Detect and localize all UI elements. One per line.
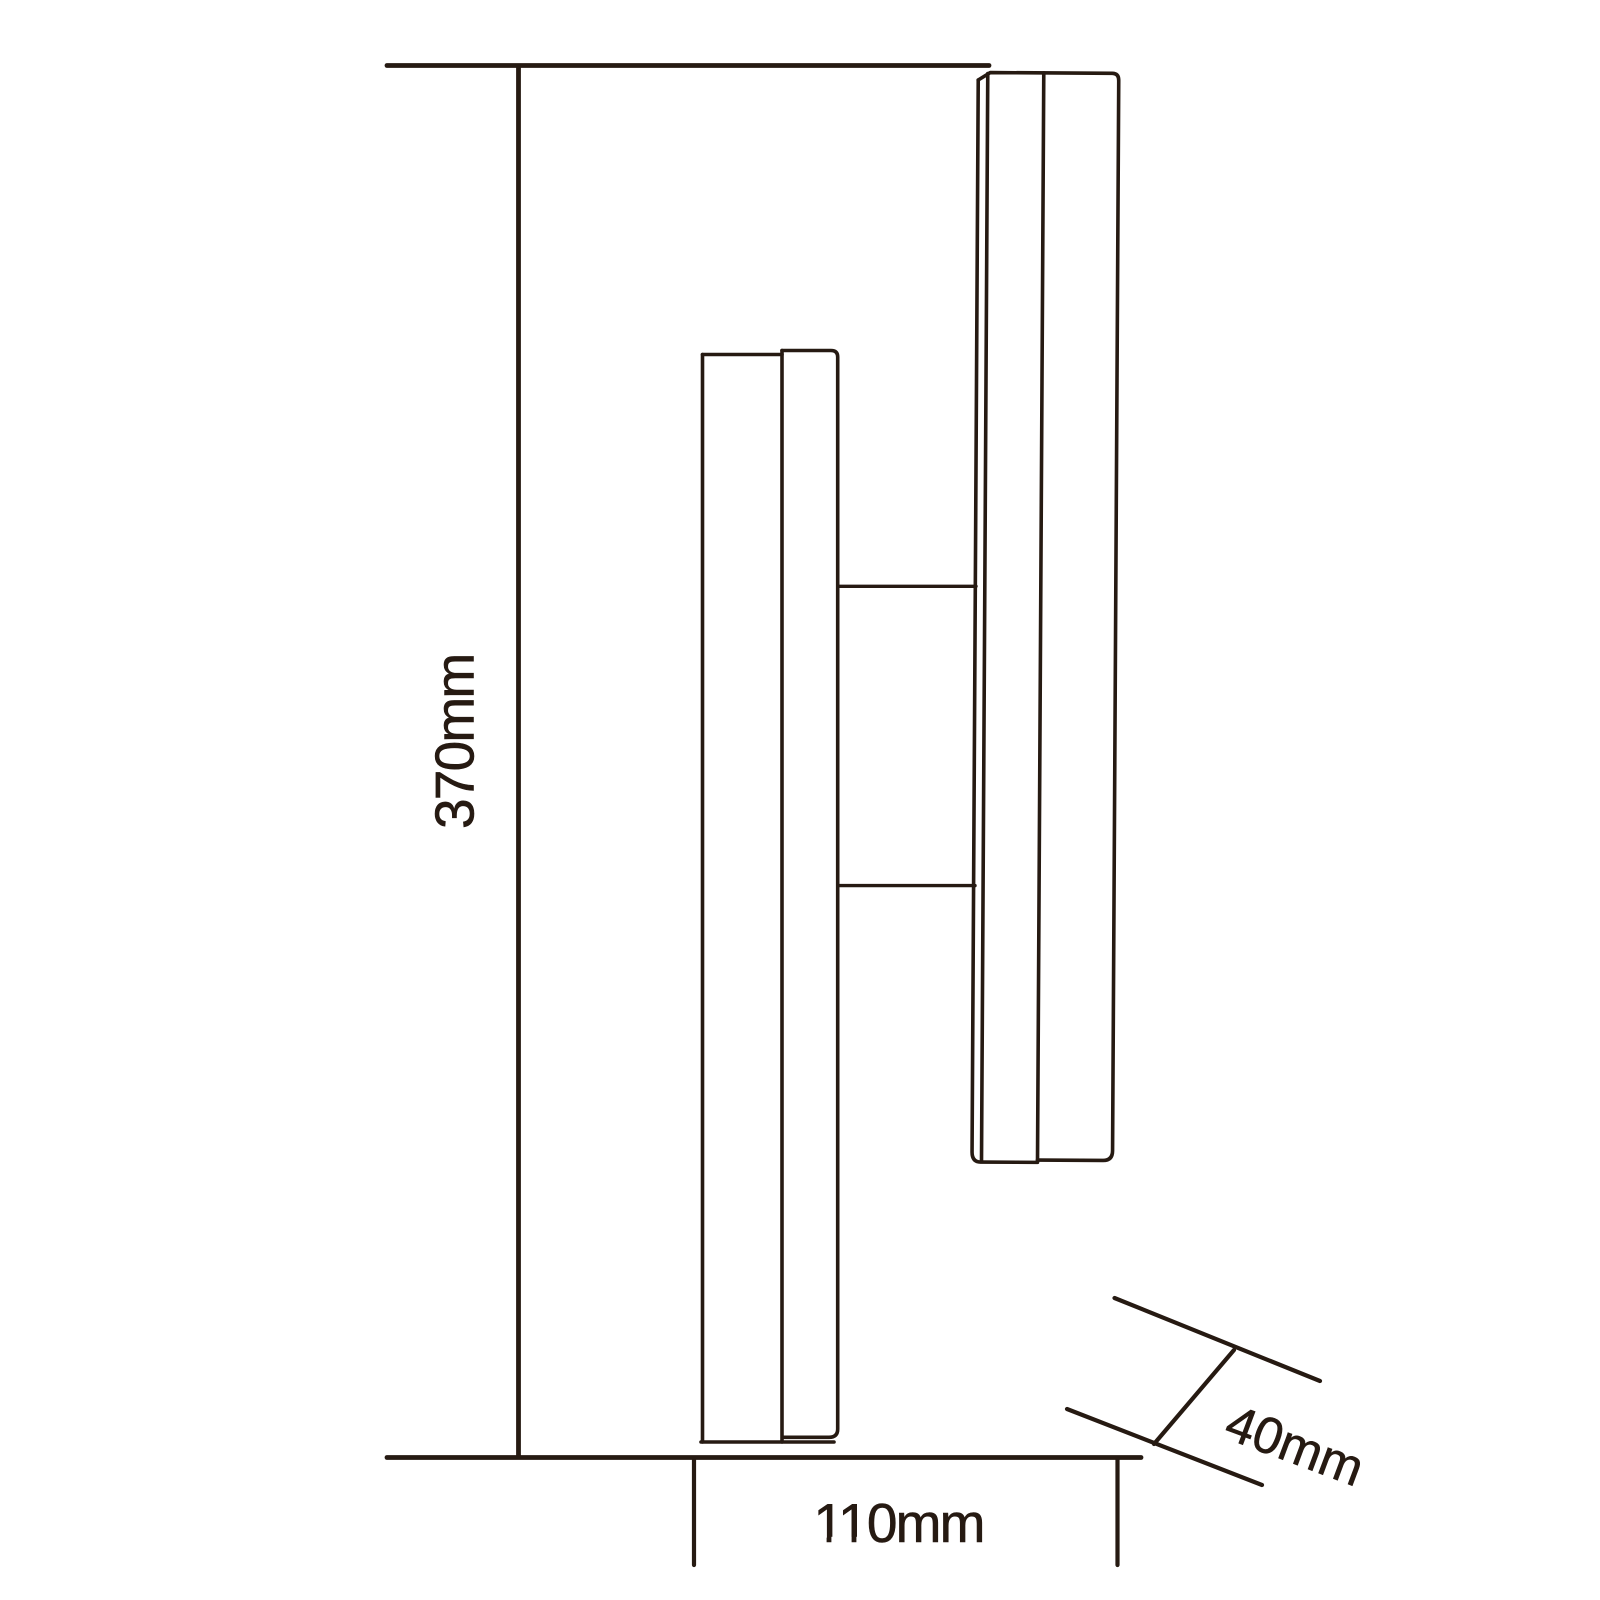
svg-text:110mm: 110mm (813, 1492, 983, 1554)
svg-text:370mm: 370mm (424, 655, 486, 829)
